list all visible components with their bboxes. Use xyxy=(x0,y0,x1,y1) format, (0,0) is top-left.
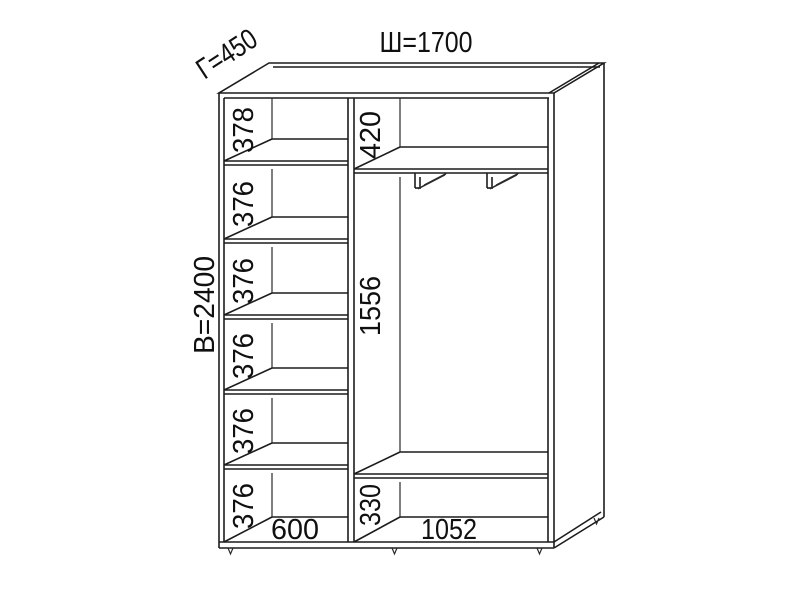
shelf xyxy=(354,452,548,478)
wardrobe-diagram: Ш=1700 Г=450 В=2400 378 376 376 376 376 … xyxy=(0,0,800,600)
shelf-section-label: 376 xyxy=(228,408,260,454)
base-panel xyxy=(219,542,554,548)
shelf-section-label: 376 xyxy=(228,258,260,304)
wardrobe-carcass xyxy=(219,63,604,554)
dimension-labels: Ш=1700 Г=450 В=2400 378 376 376 376 376 … xyxy=(189,23,477,546)
top-section-label: 420 xyxy=(355,111,387,159)
bottom-section-label: 330 xyxy=(355,484,387,526)
diagram-canvas: Ш=1700 Г=450 В=2400 378 376 376 376 376 … xyxy=(0,0,800,600)
depth-dimension-label: Г=450 xyxy=(191,23,264,86)
shelf-section-label: 376 xyxy=(228,333,260,379)
width-dimension-label: Ш=1700 xyxy=(380,27,473,59)
shelf-section-label: 376 xyxy=(228,181,260,227)
hanging-rod-bracket xyxy=(487,173,519,189)
hanging-rod-bracket xyxy=(415,173,447,189)
left-shelf-column xyxy=(224,98,348,542)
hanging-section-label: 1556 xyxy=(355,276,387,336)
center-divider-panel xyxy=(348,98,354,542)
shelf-section-label: 376 xyxy=(228,483,260,529)
right-side-panel xyxy=(548,63,604,548)
right-bay-width-label: 1052 xyxy=(421,514,477,546)
shelf-section-label: 378 xyxy=(228,107,260,153)
left-bay-width-label: 600 xyxy=(271,514,319,546)
top-panel xyxy=(219,63,604,98)
height-dimension-label: В=2400 xyxy=(189,256,221,354)
